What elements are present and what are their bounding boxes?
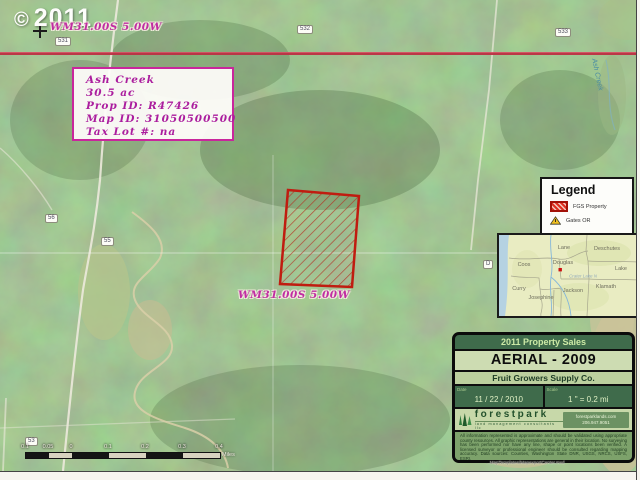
panel-logo-row: forestpark land management consultants l… xyxy=(455,409,632,432)
property-name: Ash Creek xyxy=(86,74,228,87)
contact-phone: 206.947.9051 xyxy=(565,420,627,426)
legend-title: Legend xyxy=(551,183,626,197)
panel-title: 2011 Property Sales xyxy=(455,335,632,351)
township-label-mid: WM31.00S 5.00W xyxy=(238,289,350,301)
warning-triangle-icon xyxy=(550,216,561,225)
scale-unit: Miles xyxy=(222,452,235,458)
legend-item-fgs-property: FGS Property xyxy=(550,201,626,212)
map-title-panel: 2011 Property Sales AERIAL - 2009 Fruit … xyxy=(452,332,635,463)
county-label-coos: Coos xyxy=(518,262,531,268)
property-map-id: Map ID: 31050500500 xyxy=(86,113,228,126)
legend-item-label: Gates OR xyxy=(566,218,590,224)
county-label-lane: Lane xyxy=(558,245,570,251)
county-label-douglas: Douglas xyxy=(553,260,573,266)
panel-company: Fruit Growers Supply Co. xyxy=(455,372,632,386)
date-label: Date xyxy=(457,387,467,392)
legend-item-label: FGS Property xyxy=(573,204,607,210)
scale-tick: 0.3 xyxy=(178,444,186,450)
export-file-path: ...MapTemplates/MapexportCenter.mxd xyxy=(486,460,565,465)
scale-tick: 0.4 xyxy=(215,444,223,450)
scale-cell: Scale 1 " = 0.2 mi xyxy=(545,386,633,407)
road-label-56: 56 xyxy=(45,214,58,223)
parcel-swatch-icon xyxy=(550,201,568,212)
road-label-533: 533 xyxy=(555,28,571,37)
scale-bar-segments xyxy=(25,452,221,459)
property-info-box: Ash Creek 30.5 ac Prop ID: R47426 Map ID… xyxy=(72,67,234,141)
county-label-curry: Curry xyxy=(512,286,525,292)
county-label-deschutes: Deschutes xyxy=(594,246,620,252)
page-margin-bottom xyxy=(0,471,640,480)
legend-item-gates: Gates OR xyxy=(550,216,626,225)
county-label-jackson: Jackson xyxy=(563,288,583,294)
scale-bar: 0.1 0.05 0 0.1 0.2 0.3 0.4 Miles xyxy=(22,444,237,460)
contact-block: forestparklands.com 206.947.9051 xyxy=(563,412,629,428)
tree-logo-icon xyxy=(458,412,473,427)
road-label-532: 532 xyxy=(297,25,313,34)
scale-tick: 0.1 xyxy=(104,444,112,450)
township-label-top: WM31.00S 5.00W xyxy=(50,21,162,33)
scale-tick: 0 xyxy=(69,444,72,450)
county-locator-inset: Lane Deschutes Coos Douglas Lake Curry J… xyxy=(497,233,640,318)
inset-watermark: Crater Lake N xyxy=(569,274,597,279)
road-label-55: 55 xyxy=(101,237,114,246)
panel-disclaimer: All information represented is approxima… xyxy=(455,432,632,463)
property-acreage: 30.5 ac xyxy=(86,87,228,100)
property-parcel-outline xyxy=(280,190,359,287)
scale-tick: 0.05 xyxy=(43,444,54,450)
property-tax-lot: Tax Lot #: na xyxy=(86,126,228,139)
road-label-531: 531 xyxy=(55,37,71,46)
scale-tick: 0.1 xyxy=(21,444,29,450)
property-map-export: ©2011 WM31.00S 5.00W WM31.00S 5.00W Ash … xyxy=(0,0,640,480)
county-label-josephine: Josephine xyxy=(528,295,553,301)
road-label-d: D xyxy=(483,260,493,269)
property-prop-id: Prop ID: R47426 xyxy=(86,100,228,113)
logo-tagline: land management consultants llc xyxy=(475,421,563,430)
scale-tick: 0.2 xyxy=(141,444,149,450)
date-cell: Date 11 / 22 / 2010 xyxy=(455,386,545,407)
copyright-icon: © xyxy=(14,9,30,31)
forestpark-logo: forestpark land management consultants l… xyxy=(458,410,563,430)
county-label-lake: Lake xyxy=(615,266,627,272)
date-value: 11 / 22 / 2010 xyxy=(455,386,543,404)
panel-date-scale-row: Date 11 / 22 / 2010 Scale 1 " = 0.2 mi xyxy=(455,386,632,409)
legend-box: Legend FGS Property Gates OR xyxy=(540,177,634,236)
logo-text: forestpark xyxy=(475,410,563,420)
subject-location-marker xyxy=(559,268,562,271)
page-margin-right xyxy=(636,0,640,480)
county-label-klamath: Klamath xyxy=(596,284,616,290)
panel-subtitle: AERIAL - 2009 xyxy=(455,351,632,372)
scale-label: Scale xyxy=(547,387,558,392)
